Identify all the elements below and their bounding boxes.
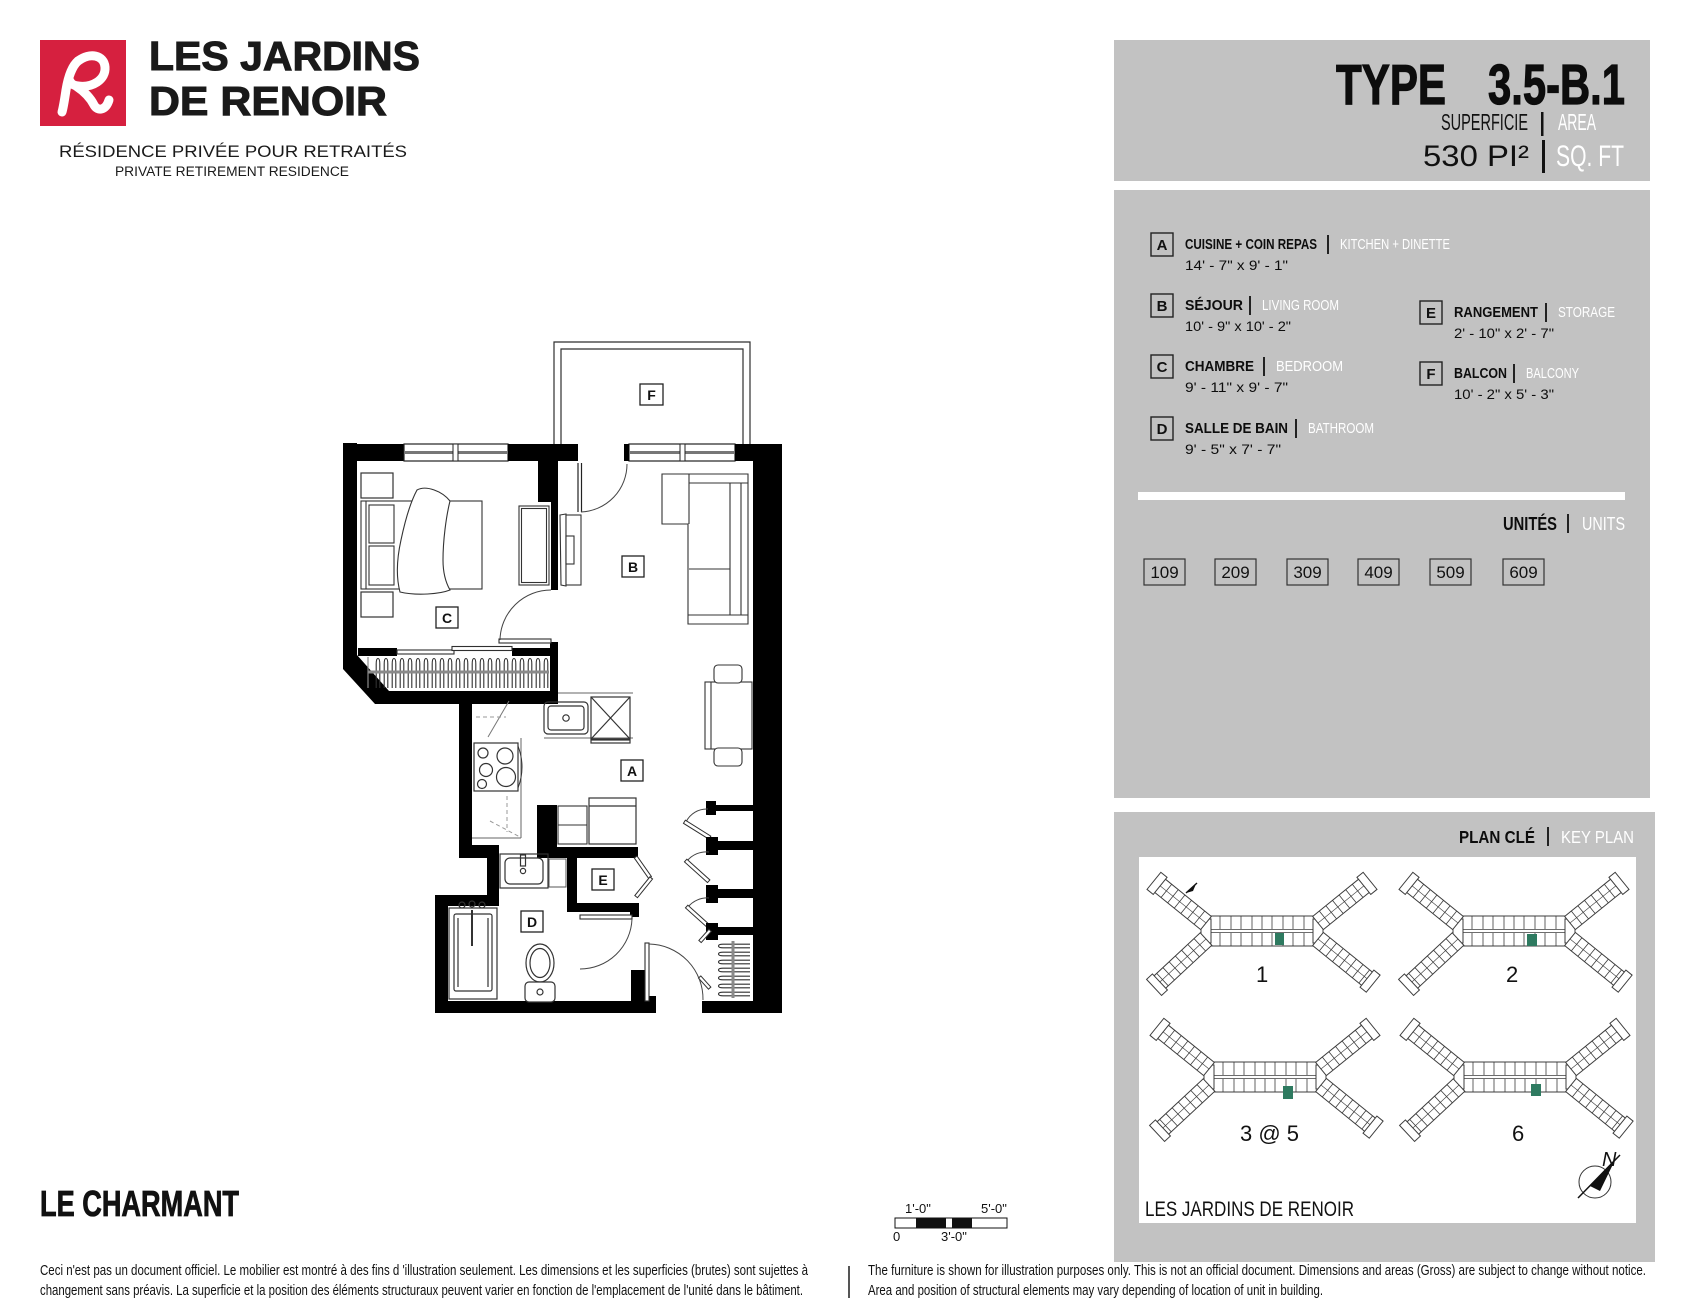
svg-text:509: 509 (1436, 563, 1464, 582)
svg-text:Ceci n'est pas un document off: Ceci n'est pas un document officiel. Le … (40, 1263, 809, 1279)
svg-text:Area and position of structura: Area and position of structural elements… (868, 1283, 1323, 1299)
svg-text:9' - 11" x 9' - 7": 9' - 11" x 9' - 7" (1185, 379, 1288, 395)
svg-text:STORAGE: STORAGE (1558, 305, 1615, 321)
svg-text:KEY PLAN: KEY PLAN (1561, 827, 1634, 847)
svg-text:AREA: AREA (1558, 109, 1596, 135)
svg-text:E: E (1426, 305, 1436, 322)
svg-text:C: C (442, 610, 452, 626)
svg-text:309: 309 (1293, 563, 1321, 582)
svg-text:3 @ 5: 3 @ 5 (1240, 1121, 1299, 1146)
svg-text:The furniture is shown for ill: The furniture is shown for illustration … (868, 1263, 1646, 1279)
svg-text:LIVING ROOM: LIVING ROOM (1262, 298, 1339, 314)
svg-text:209: 209 (1221, 563, 1249, 582)
svg-text:6: 6 (1512, 1121, 1524, 1146)
svg-text:9' - 5" x 7' - 7": 9' - 5" x 7' - 7" (1185, 441, 1281, 457)
svg-text:SÉJOUR: SÉJOUR (1185, 297, 1244, 314)
svg-text:B: B (628, 559, 638, 575)
svg-text:1: 1 (1256, 962, 1268, 987)
svg-text:LES JARDINS: LES JARDINS (149, 33, 420, 79)
svg-text:TYPE: TYPE (1336, 53, 1446, 116)
svg-text:B: B (1157, 298, 1168, 315)
svg-text:2' - 10" x 2' - 7": 2' - 10" x 2' - 7" (1454, 325, 1554, 341)
svg-text:BATHROOM: BATHROOM (1308, 421, 1374, 437)
svg-text:BALCONY: BALCONY (1526, 366, 1579, 382)
svg-text:SALLE DE BAIN: SALLE DE BAIN (1185, 421, 1288, 437)
svg-text:LES JARDINS DE RENOIR: LES JARDINS DE RENOIR (1145, 1198, 1354, 1221)
svg-text:E: E (598, 872, 607, 888)
svg-text:3.5-B.1: 3.5-B.1 (1488, 53, 1625, 116)
svg-text:RÉSIDENCE PRIVÉE POUR RETRAITÉ: RÉSIDENCE PRIVÉE POUR RETRAITÉS (59, 142, 407, 161)
svg-text:UNITÉS: UNITÉS (1503, 513, 1557, 534)
svg-text:609: 609 (1509, 563, 1537, 582)
svg-text:10' - 2" x 5' - 3": 10' - 2" x 5' - 3" (1454, 386, 1554, 402)
svg-text:3'-0": 3'-0" (941, 1229, 967, 1244)
svg-text:PRIVATE RETIREMENT RESIDENCE: PRIVATE RETIREMENT RESIDENCE (115, 164, 349, 179)
svg-text:CUISINE + COIN REPAS: CUISINE + COIN REPAS (1185, 237, 1317, 253)
svg-text:BEDROOM: BEDROOM (1276, 359, 1343, 375)
svg-text:RANGEMENT: RANGEMENT (1454, 305, 1538, 321)
svg-text:A: A (627, 763, 637, 779)
svg-text:D: D (527, 914, 537, 930)
svg-text:A: A (1157, 237, 1168, 254)
svg-text:LE CHARMANT: LE CHARMANT (40, 1183, 239, 1224)
svg-text:F: F (1426, 366, 1435, 383)
svg-text:PLAN CLÉ: PLAN CLÉ (1459, 826, 1535, 847)
svg-text:10' - 9" x 10' - 2": 10' - 9" x 10' - 2" (1185, 318, 1291, 334)
svg-text:1'-0": 1'-0" (905, 1201, 931, 1216)
svg-text:409: 409 (1364, 563, 1392, 582)
svg-text:C: C (1157, 359, 1168, 376)
svg-text:UNITS: UNITS (1582, 514, 1625, 534)
svg-text:14' - 7" x 9' - 1": 14' - 7" x 9' - 1" (1185, 257, 1288, 273)
svg-text:D: D (1157, 421, 1168, 438)
svg-text:DE RENOIR: DE RENOIR (149, 78, 387, 124)
svg-text:0: 0 (893, 1229, 900, 1244)
svg-text:530 PI²: 530 PI² (1423, 140, 1529, 173)
svg-text:SQ. FT: SQ. FT (1556, 140, 1624, 173)
svg-text:N: N (1602, 1149, 1617, 1171)
svg-text:KITCHEN + DINETTE: KITCHEN + DINETTE (1340, 237, 1450, 253)
svg-text:changement sans préavis. La su: changement sans préavis. La superficie e… (40, 1283, 803, 1299)
svg-text:F: F (647, 387, 656, 403)
svg-text:SUPERFICIE: SUPERFICIE (1441, 109, 1528, 135)
svg-text:109: 109 (1150, 563, 1178, 582)
svg-text:5'-0": 5'-0" (981, 1201, 1007, 1216)
svg-text:CHAMBRE: CHAMBRE (1185, 359, 1254, 375)
svg-text:2: 2 (1506, 962, 1518, 987)
svg-text:BALCON: BALCON (1454, 366, 1507, 382)
